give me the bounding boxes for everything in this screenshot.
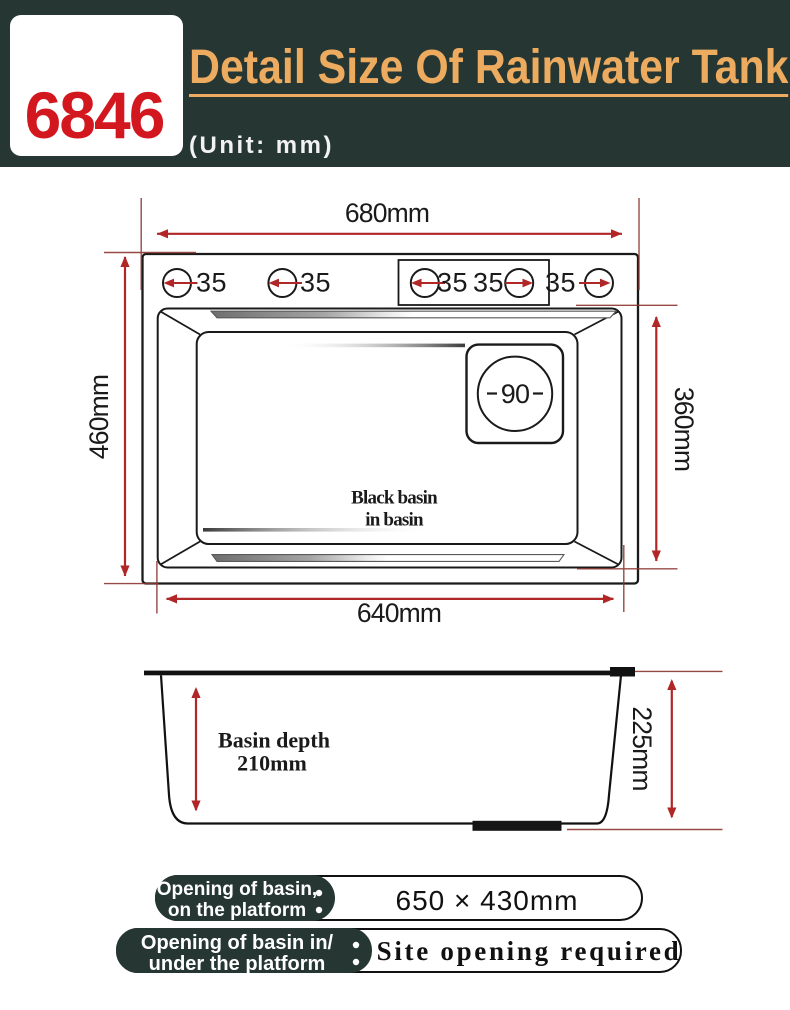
- svg-text:35: 35: [196, 268, 227, 298]
- svg-text:90: 90: [501, 379, 529, 409]
- svg-text:35: 35: [437, 268, 468, 298]
- svg-text:Black basin: Black basin: [351, 488, 438, 509]
- svg-text:in basin: in basin: [365, 510, 424, 531]
- svg-text:640mm: 640mm: [357, 598, 441, 628]
- svg-text:35: 35: [300, 268, 331, 298]
- svg-text:225mm: 225mm: [627, 706, 657, 790]
- svg-text:35: 35: [545, 268, 576, 298]
- svg-text:680mm: 680mm: [345, 198, 429, 228]
- svg-text:210mm: 210mm: [237, 751, 307, 776]
- svg-text:35: 35: [473, 268, 504, 298]
- svg-text:Basin depth: Basin depth: [218, 728, 330, 753]
- svg-text:460mm: 460mm: [84, 375, 114, 459]
- svg-text:360mm: 360mm: [669, 387, 699, 471]
